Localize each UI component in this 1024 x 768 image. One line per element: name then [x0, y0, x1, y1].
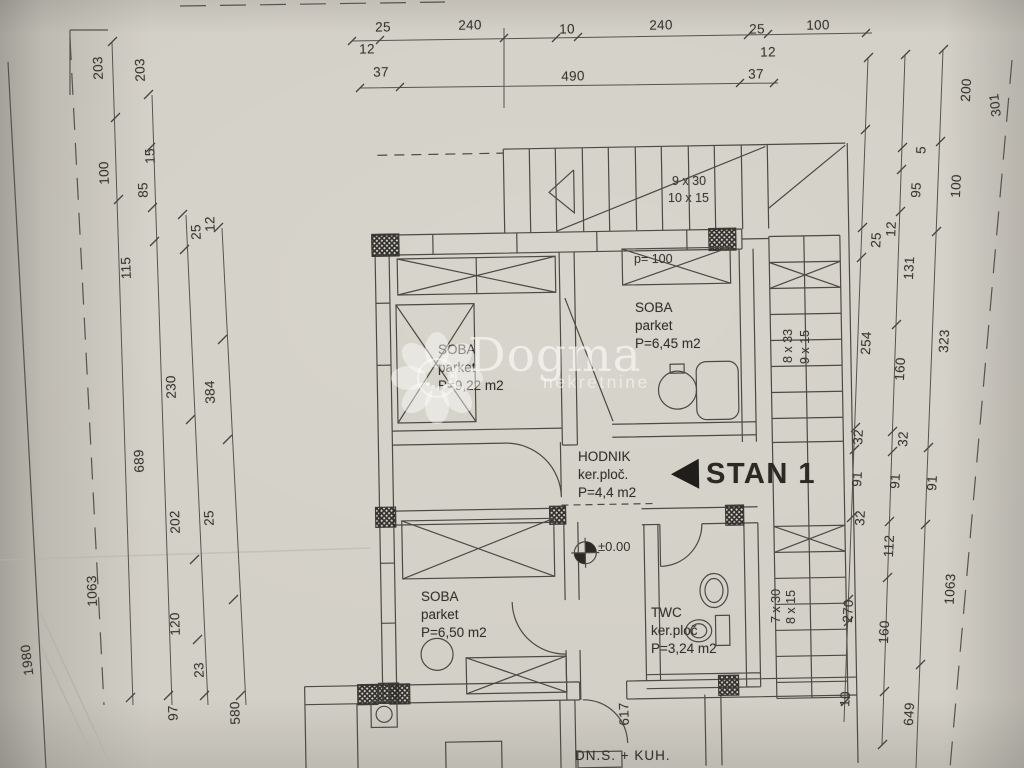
dogma-logo-icon — [0, 0, 1024, 768]
floor-plan-photo: 25 240 10 240 25 100 12 12 37 490 37 203… — [0, 0, 1024, 768]
watermark-subtitle: nekretnine — [543, 372, 650, 393]
